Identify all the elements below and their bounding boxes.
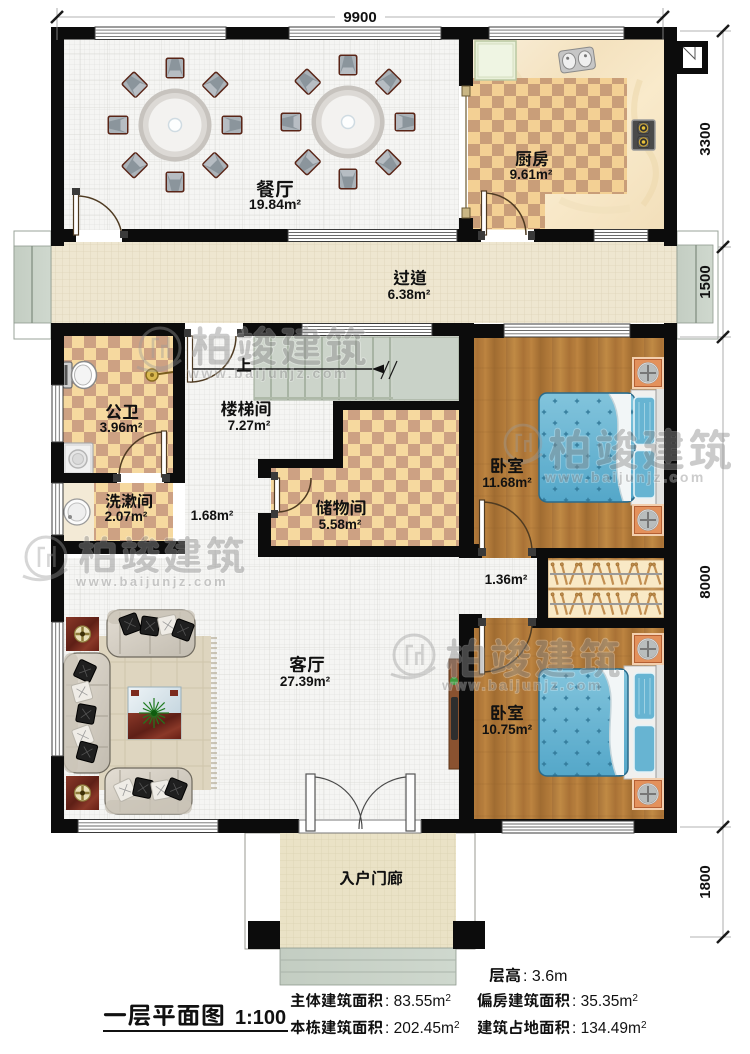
svg-text:3.96m²: 3.96m² — [100, 420, 143, 435]
svg-text:www.baijunjz.com: www.baijunjz.com — [75, 574, 228, 589]
svg-text:: 3.6m: : 3.6m — [523, 968, 567, 985]
svg-text:www.baijunjz.com: www.baijunjz.com — [544, 469, 706, 485]
svg-text:19.84m²: 19.84m² — [249, 196, 301, 212]
svg-text:www.baijunjz.com: www.baijunjz.com — [441, 677, 603, 693]
svg-text:6.38m²: 6.38m² — [388, 287, 431, 302]
svg-text:2.07m²: 2.07m² — [105, 509, 148, 524]
svg-text:27.39m²: 27.39m² — [280, 674, 331, 689]
svg-text:1.36m²: 1.36m² — [485, 572, 528, 587]
svg-text:9900: 9900 — [343, 9, 376, 26]
svg-text:7.27m²: 7.27m² — [228, 418, 271, 433]
svg-text:www.baijunjz.com: www.baijunjz.com — [187, 365, 349, 381]
svg-text:1800: 1800 — [697, 865, 714, 898]
svg-text:: 35.35m2: : 35.35m2 — [572, 993, 638, 1010]
svg-text:9.61m²: 9.61m² — [510, 167, 553, 182]
svg-text:10.75m²: 10.75m² — [482, 722, 533, 737]
svg-text:: 202.45m2: : 202.45m2 — [385, 1020, 460, 1037]
svg-text:11.68m²: 11.68m² — [482, 475, 532, 490]
svg-text:: 134.49m2: : 134.49m2 — [572, 1020, 647, 1037]
svg-text:1500: 1500 — [697, 265, 714, 298]
svg-text:1.68m²: 1.68m² — [191, 508, 234, 523]
svg-text:3300: 3300 — [697, 122, 714, 155]
svg-text:8000: 8000 — [697, 565, 714, 598]
svg-text:5.58m²: 5.58m² — [319, 517, 362, 532]
svg-text:: 83.55m2: : 83.55m2 — [385, 993, 451, 1010]
svg-text:1:100: 1:100 — [235, 1007, 286, 1029]
